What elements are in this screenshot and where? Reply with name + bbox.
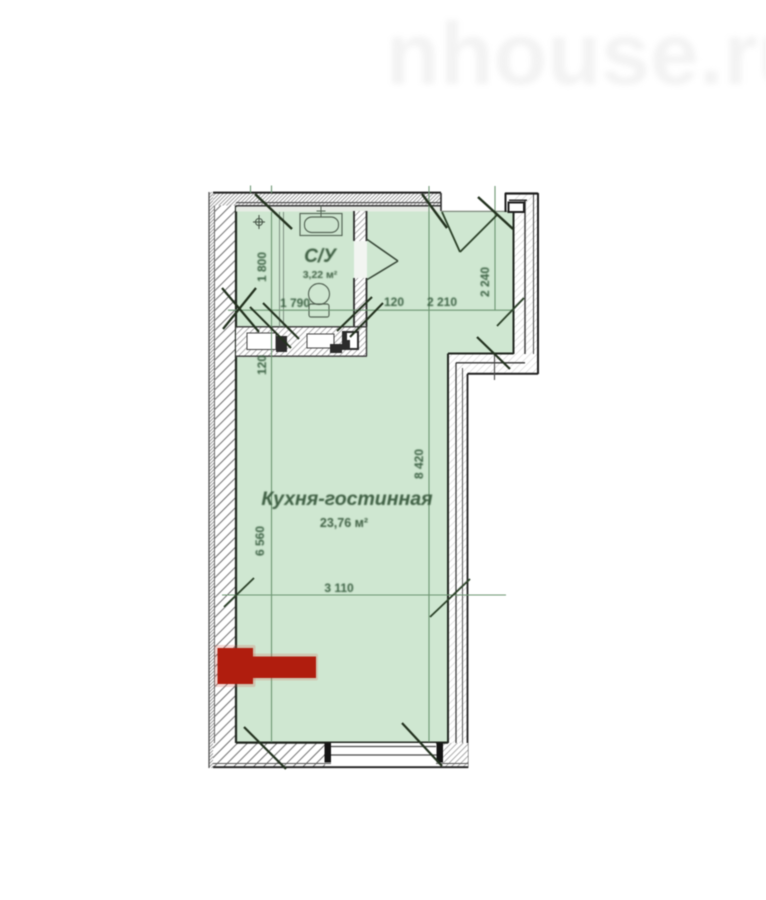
svg-text:8 420: 8 420 — [412, 449, 426, 479]
svg-text:3,22 м²: 3,22 м² — [303, 269, 338, 281]
svg-text:120: 120 — [255, 355, 269, 375]
svg-text:23,76 м²: 23,76 м² — [320, 516, 368, 530]
svg-text:3 110: 3 110 — [324, 581, 354, 595]
svg-text:2 210: 2 210 — [427, 295, 457, 309]
svg-text:120: 120 — [384, 295, 404, 309]
svg-text:1 790: 1 790 — [280, 296, 310, 310]
svg-text:Кухня-гостинная: Кухня-гостинная — [261, 488, 433, 510]
svg-text:2 240: 2 240 — [478, 267, 492, 297]
svg-text:1 800: 1 800 — [255, 252, 269, 282]
svg-text:С/У: С/У — [304, 246, 338, 267]
svg-text:6 560: 6 560 — [253, 526, 267, 556]
svg-text:nhousе.ru: nhousе.ru — [386, 4, 766, 103]
